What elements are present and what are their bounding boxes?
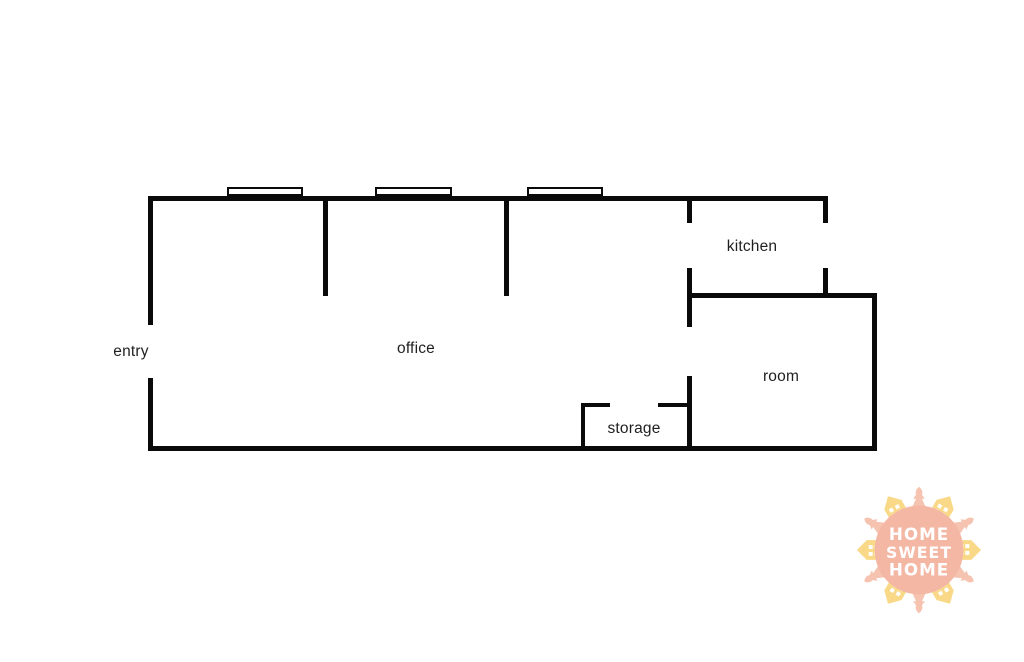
room-label-kitchen: kitchen [727,238,778,256]
wall-segment [148,196,153,325]
wall-segment [581,403,585,451]
window-symbol [227,187,303,196]
wall-segment [148,446,877,451]
room-label-storage: storage [607,420,660,438]
floorplan-canvas: HOME SWEET HOME entryofficekitchenstorag… [0,0,1024,662]
wall-segment [148,196,828,201]
wall-segment [872,293,877,451]
wall-segment [823,196,828,223]
logo-text-line3: HOME [889,560,949,580]
wall-segment [504,196,509,296]
room-label-room: room [763,368,799,386]
wall-segment [148,378,153,451]
wall-segment [687,376,692,451]
room-label-entry: entry [113,343,148,361]
home-sweet-home-logo: HOME SWEET HOME [845,481,993,619]
wall-segment [687,293,877,298]
window-symbol [527,187,603,196]
wall-segment [687,196,692,223]
wall-segment [658,403,691,407]
window-symbol [375,187,452,196]
wall-segment [323,196,328,296]
room-label-office: office [397,340,435,358]
logo-text-line1: HOME [889,524,949,544]
wall-segment [581,403,610,407]
